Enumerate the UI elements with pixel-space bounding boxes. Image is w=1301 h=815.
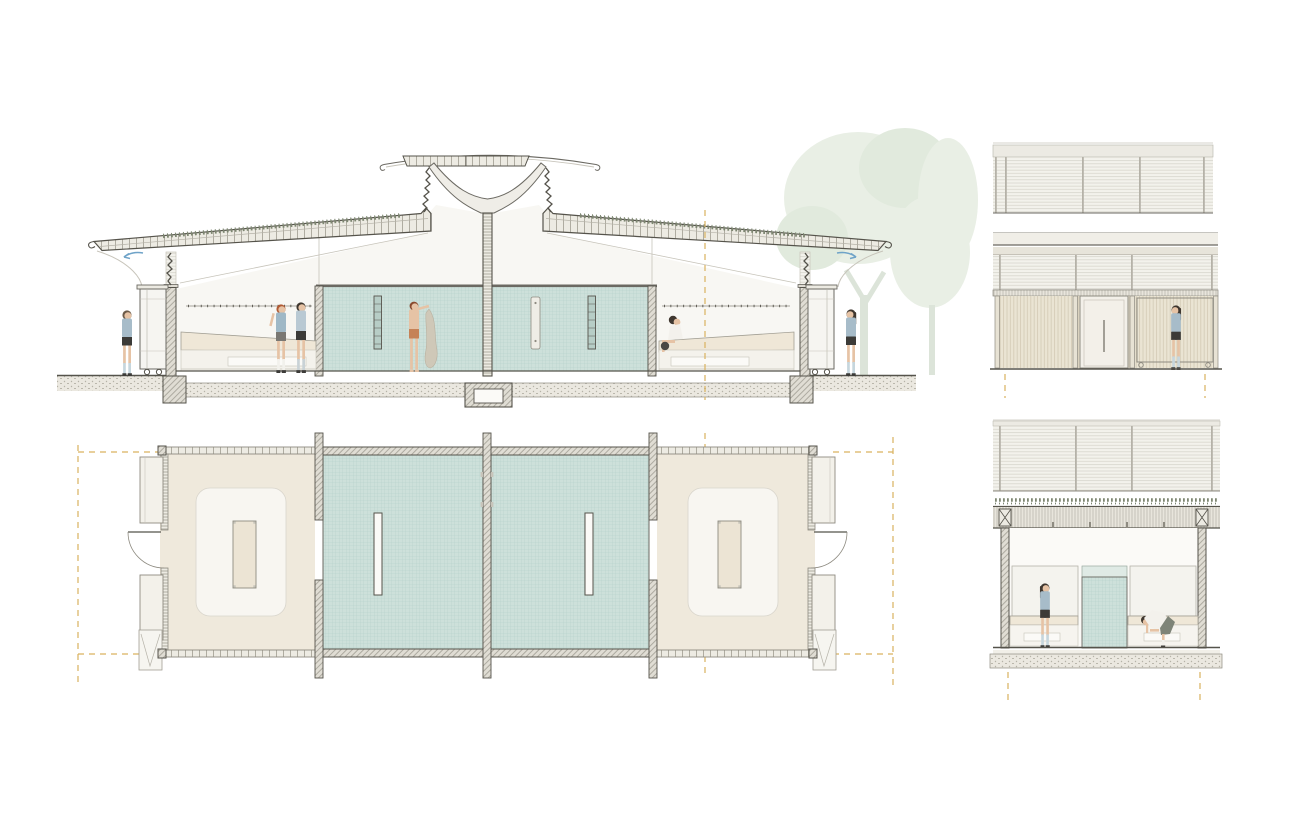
changing-room-left-plan (160, 454, 315, 650)
column-cross (1001, 528, 1009, 648)
centre-wall (483, 433, 491, 678)
apex-canopy (380, 155, 600, 170)
entrance-door (1080, 296, 1128, 368)
shower-baffle (374, 296, 382, 349)
panel-front-elevation (990, 143, 1222, 398)
door-plan (128, 532, 164, 568)
slat-wall (995, 296, 1218, 368)
bench-cross-left (1010, 616, 1078, 646)
island-bench-plan (233, 521, 256, 588)
clerestory-fascia (993, 421, 1220, 426)
clerestory-louvers (993, 426, 1220, 491)
shower-room-right-plan (491, 455, 649, 649)
upper-louver-band (993, 157, 1213, 213)
transom-band (993, 290, 1218, 296)
panel-floor-plan (78, 433, 893, 690)
island-bench-plan (718, 521, 741, 588)
rain-path (97, 251, 142, 287)
locker-bank-plan (812, 457, 835, 523)
shower-baffle-plan (374, 513, 382, 595)
cut-wall (648, 286, 656, 376)
gutter-curl (89, 242, 95, 249)
drawing-sheet (0, 0, 1301, 815)
tiled-partition-cross (1082, 566, 1127, 648)
shower-room-left-plan (323, 455, 483, 649)
door-plan (811, 532, 847, 568)
panel-cross-section (990, 420, 1222, 700)
floor-slab-cross (990, 648, 1222, 669)
sheet-svg (0, 0, 1301, 815)
lower-fascia (993, 233, 1218, 255)
column-cross (1198, 528, 1206, 648)
locker-right (806, 285, 837, 375)
column-foundation (465, 383, 512, 407)
shower-baffle (588, 296, 596, 349)
figure-man-standing-left (122, 310, 132, 376)
shower-panel (531, 297, 540, 349)
figure-woman-standing-right (846, 309, 856, 376)
tree-trunk (860, 295, 868, 375)
locker-left (137, 285, 168, 375)
locker-bank-plan (140, 457, 163, 523)
green-roof-beam (993, 500, 1220, 528)
backrest-panel (1130, 566, 1196, 616)
changing-room-right-plan (657, 454, 815, 650)
shower-baffle-plan (585, 513, 593, 595)
upper-fascia (993, 145, 1213, 157)
lower-louver-band (993, 255, 1218, 290)
panel-longitudinal-section (57, 128, 978, 407)
